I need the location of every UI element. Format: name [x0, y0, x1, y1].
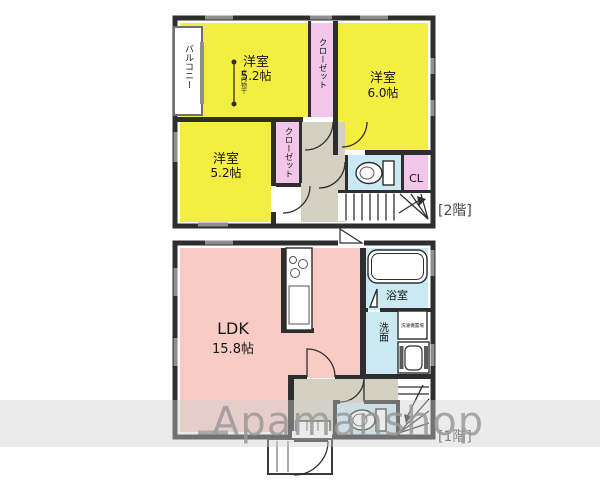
wall	[281, 248, 286, 330]
closet-2f-sw-label: クローゼット	[283, 127, 293, 178]
washroom-label: 洗面	[377, 322, 389, 343]
wall	[271, 122, 276, 186]
washbasin-icon	[398, 342, 429, 373]
wall	[175, 117, 303, 122]
window	[205, 16, 233, 20]
kitchen-counter	[286, 248, 312, 330]
balcony-label: バルコニー	[183, 44, 194, 89]
wall	[276, 183, 301, 187]
wall	[360, 248, 366, 375]
window	[431, 344, 435, 366]
closet-2f-nw-label: クローゼット	[317, 38, 327, 89]
bathtub-icon	[368, 250, 427, 283]
window	[360, 16, 388, 20]
laundry-label: 洗濯機置場	[401, 322, 424, 329]
window	[431, 250, 435, 276]
ldk-name: LDK	[217, 319, 249, 338]
room-2f-sw-name: 洋室	[213, 151, 239, 167]
window	[174, 268, 178, 296]
wall	[401, 155, 404, 192]
wall	[333, 21, 338, 155]
wall	[338, 190, 433, 193]
ldk-room	[180, 248, 362, 378]
wall	[365, 150, 433, 155]
bath-label: 浴室	[386, 288, 408, 302]
window	[431, 100, 435, 116]
wall	[308, 21, 311, 117]
watermark-text: Apamanshop	[212, 399, 484, 445]
floor-2f-label: [2階]	[438, 203, 472, 219]
wall	[335, 375, 362, 379]
floorplan-svg: 洋室 5.2帖 洋室 6.0帖 洋室 5.2帖 クローゼット クローゼット バル…	[0, 0, 600, 480]
wall	[294, 375, 307, 379]
window	[174, 338, 178, 366]
awning-window-icon	[340, 229, 362, 243]
wall	[360, 374, 433, 379]
toilet-icon-2f	[356, 161, 394, 185]
window	[431, 58, 435, 74]
window	[174, 132, 178, 162]
floor-2f: 洋室 5.2帖 洋室 6.0帖 洋室 5.2帖 クローゼット クローゼット バル…	[174, 16, 472, 227]
toilet-tank	[383, 161, 394, 185]
window	[310, 16, 332, 20]
wall	[345, 155, 348, 192]
room-2f-sw-size: 5.2帖	[210, 165, 241, 180]
floorplan-page: 洋室 5.2帖 洋室 6.0帖 洋室 5.2帖 クローゼット クローゼット バル…	[0, 0, 600, 480]
window	[205, 241, 233, 245]
window	[198, 223, 228, 227]
wall	[299, 122, 302, 183]
indoor-drying-label: 室内物干	[240, 69, 247, 95]
balcony-window	[200, 42, 204, 104]
cl-label: CL	[409, 172, 424, 185]
ldk-size: 15.8帖	[212, 342, 254, 357]
room-2f-ne-size: 6.0帖	[367, 85, 398, 100]
room-2f-nw-name: 洋室	[243, 54, 269, 70]
wall	[366, 308, 368, 312]
wall	[271, 212, 276, 224]
watermark: Apamanshop	[0, 399, 600, 447]
room-2f-ne-name: 洋室	[370, 70, 396, 86]
